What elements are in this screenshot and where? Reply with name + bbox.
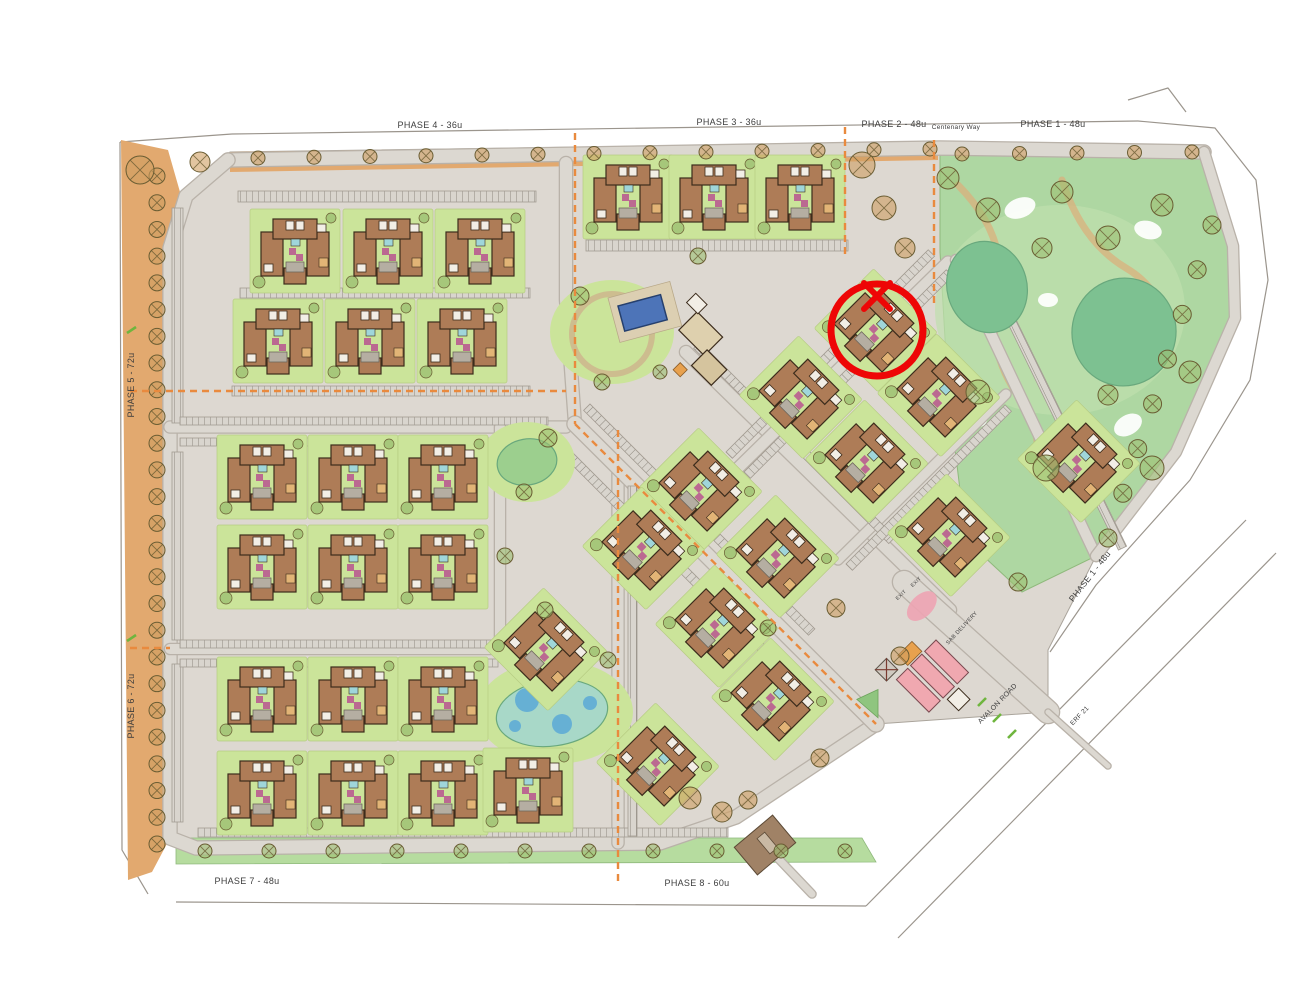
patio-detail [286, 706, 295, 715]
building-block [398, 525, 488, 609]
building-wing [366, 219, 410, 239]
planting-detail [801, 200, 808, 207]
planting-detail [354, 702, 361, 709]
patio-detail [652, 204, 661, 213]
patio-detail [412, 258, 421, 267]
building-block [250, 209, 340, 293]
building-wing [421, 761, 465, 781]
garden-tree-icon [420, 366, 432, 378]
court-detail [361, 352, 379, 362]
building-block [217, 435, 307, 519]
roof-unit [354, 763, 362, 772]
roof-unit [284, 450, 293, 458]
garden-tree-icon [328, 366, 340, 378]
garden-tree-icon [401, 502, 413, 514]
court-detail [286, 262, 304, 272]
tree-icon [976, 198, 1000, 222]
planting-detail [444, 796, 451, 803]
court-detail [791, 208, 809, 218]
tree-icon [190, 152, 210, 172]
parking-bays [586, 240, 848, 251]
tree-icon [811, 144, 825, 158]
garden-tree-icon [384, 755, 394, 765]
garden-tree-icon [831, 159, 841, 169]
water-feature [458, 329, 467, 336]
roof-unit [444, 537, 452, 546]
tree-icon [1070, 146, 1084, 160]
tree-icon [149, 542, 165, 558]
tree-icon [149, 702, 165, 718]
survey-tick [1008, 730, 1016, 738]
building-wing [240, 761, 284, 781]
water-feature [624, 185, 633, 192]
roof-unit [449, 264, 458, 272]
garden-tree-icon [326, 213, 336, 223]
tree-icon [1033, 455, 1059, 481]
parking-bays [172, 664, 183, 822]
patio-detail [377, 800, 386, 809]
building-block [233, 299, 323, 383]
court-detail [619, 208, 637, 218]
building-wing [331, 535, 375, 555]
tree-icon [1144, 395, 1162, 413]
roof-unit [444, 447, 452, 456]
planting-detail [437, 474, 444, 481]
roof-unit [379, 221, 387, 230]
planting-detail [347, 474, 354, 481]
patio-detail [302, 348, 311, 357]
tree-icon [149, 649, 165, 665]
planting-detail [256, 474, 263, 481]
water-feature [796, 185, 805, 192]
building-wing [256, 309, 300, 329]
tree-icon [149, 248, 165, 264]
garden-tree-icon [672, 222, 684, 234]
tree-icon [690, 248, 706, 264]
tree-icon [1158, 350, 1176, 368]
roof-unit [529, 760, 537, 769]
planting-detail [354, 480, 361, 487]
garden-tree-icon [220, 502, 232, 514]
planting-detail [263, 702, 270, 709]
court-detail [519, 801, 537, 811]
court-detail [344, 578, 362, 588]
planting-detail [437, 696, 444, 703]
building-block [398, 435, 488, 519]
garden-tree-icon [293, 529, 303, 539]
planting-detail [263, 480, 270, 487]
garden-tree-icon [586, 222, 598, 234]
planting-detail [279, 344, 286, 351]
boundary-road-line [232, 121, 1138, 134]
tree-icon [891, 647, 909, 665]
planting-detail [444, 480, 451, 487]
building-wing [273, 219, 317, 239]
tree-icon [1129, 440, 1147, 458]
water-feature [439, 687, 448, 694]
building-wing [506, 758, 550, 778]
building-wing [692, 165, 736, 185]
tree-icon [895, 238, 915, 258]
tree-icon [1051, 181, 1073, 203]
roof-unit [263, 447, 271, 456]
tree-icon [149, 328, 165, 344]
pond-water [552, 714, 572, 734]
tree-icon [582, 844, 596, 858]
planting-detail [456, 338, 463, 345]
building-block [343, 209, 433, 293]
roof-unit [354, 669, 362, 678]
tree-icon [454, 844, 468, 858]
roof-unit [410, 224, 419, 232]
tree-icon [1179, 361, 1201, 383]
planting-detail [522, 787, 529, 794]
garden-tree-icon [220, 724, 232, 736]
court-detail [434, 710, 452, 720]
planting-detail [347, 790, 354, 797]
water-feature [524, 778, 533, 785]
roof-unit [322, 712, 331, 720]
building-wing [240, 535, 284, 555]
planting-detail [347, 696, 354, 703]
roof-unit [484, 314, 493, 322]
roof-unit [465, 672, 474, 680]
garden-tree-icon [493, 303, 503, 313]
garden-tree-icon [486, 815, 498, 827]
tree-icon [739, 791, 757, 809]
tree-icon [1114, 484, 1132, 502]
water-feature [439, 555, 448, 562]
patio-detail [319, 258, 328, 267]
phase-label: PHASE 3 - 36u [697, 117, 762, 127]
tree-icon [326, 844, 340, 858]
water-feature [439, 781, 448, 788]
roof-unit [300, 314, 309, 322]
roof-unit [231, 580, 240, 588]
tree-icon [1128, 146, 1142, 160]
garden-tree-icon [401, 818, 413, 830]
garden-tree-icon [474, 755, 484, 765]
tree-icon [149, 596, 165, 612]
roof-unit [375, 450, 384, 458]
roof-unit [736, 170, 745, 178]
roof-unit [650, 170, 659, 178]
tree-icon [872, 196, 896, 220]
garden-tree-icon [401, 592, 413, 604]
roof-unit [502, 224, 511, 232]
patio-detail [467, 800, 476, 809]
patio-detail [394, 348, 403, 357]
planting-detail [708, 194, 715, 201]
building-wing [778, 165, 822, 185]
tree-icon [539, 429, 557, 447]
planting-detail [382, 248, 389, 255]
tree-icon [1009, 573, 1027, 591]
roof-unit [434, 537, 442, 546]
garden-tree-icon [659, 159, 669, 169]
patio-detail [552, 797, 561, 806]
patio-detail [377, 484, 386, 493]
garden-tree-icon [309, 303, 319, 313]
planting-detail [463, 344, 470, 351]
boundary-road-line [120, 134, 232, 142]
tree-icon [198, 844, 212, 858]
tree-icon [653, 365, 667, 379]
building-wing [421, 667, 465, 687]
planting-detail [622, 194, 629, 201]
building-block [308, 657, 398, 741]
tree-icon [827, 599, 845, 617]
building-wing [240, 667, 284, 687]
roof-unit [412, 806, 421, 814]
roof-unit [519, 760, 527, 769]
garden-tree-icon [293, 439, 303, 449]
tree-icon [307, 150, 321, 164]
building-wing [421, 535, 465, 555]
tree-icon [149, 809, 165, 825]
planting-detail [263, 796, 270, 803]
parking-bays [238, 191, 536, 202]
patio-detail [377, 574, 386, 583]
building-block [435, 209, 525, 293]
phase-label: PHASE 7 - 48u [215, 876, 280, 886]
garden-tree-icon [511, 213, 521, 223]
roof-unit [822, 170, 831, 178]
building-block [417, 299, 507, 383]
planting-detail [437, 790, 444, 797]
roof-unit [286, 221, 294, 230]
planting-detail [371, 344, 378, 351]
roof-unit [434, 447, 442, 456]
tree-icon [774, 844, 788, 858]
water-feature [710, 185, 719, 192]
phase-label: PHASE 8 - 60u [665, 878, 730, 888]
garden-tree-icon [474, 661, 484, 671]
tree-icon [516, 484, 532, 500]
court-detail [253, 578, 271, 588]
roof-unit [465, 540, 474, 548]
roof-unit [253, 447, 261, 456]
tree-icon [643, 146, 657, 160]
roof-unit [444, 669, 452, 678]
roof-unit [322, 490, 331, 498]
roof-unit [497, 803, 506, 811]
road-label: Centenary Way [932, 124, 981, 131]
roof-unit [344, 763, 352, 772]
building-wing [606, 165, 650, 185]
road-label: ERF 21 [1069, 705, 1091, 727]
tree-icon [518, 844, 532, 858]
water-feature [384, 239, 393, 246]
building-block [217, 657, 307, 741]
tree-icon [1151, 194, 1173, 216]
tree-icon [1203, 216, 1221, 234]
pond-water [583, 696, 597, 710]
planting-detail [296, 254, 303, 261]
tree-icon [849, 152, 875, 178]
court-detail [434, 488, 452, 498]
planting-detail [437, 564, 444, 571]
tree-icon [149, 302, 165, 318]
tree-icon [149, 275, 165, 291]
garden-tree-icon [220, 818, 232, 830]
building-block [217, 525, 307, 609]
phase-label: PHASE 5 - 72u [126, 353, 136, 418]
roof-unit [619, 167, 627, 176]
tree-icon [594, 374, 610, 390]
court-detail [434, 804, 452, 814]
water-feature [291, 239, 300, 246]
building-block [398, 657, 488, 741]
patio-detail [824, 204, 833, 213]
roof-unit [481, 221, 489, 230]
water-feature [258, 465, 267, 472]
court-detail [705, 208, 723, 218]
tree-icon [811, 749, 829, 767]
building-block [583, 155, 673, 239]
tree-icon [149, 515, 165, 531]
tree-icon [646, 844, 660, 858]
planting-detail [629, 200, 636, 207]
roof-unit [344, 669, 352, 678]
roof-unit [412, 490, 421, 498]
court-detail [253, 488, 271, 498]
roof-unit [344, 537, 352, 546]
tree-icon [587, 147, 601, 161]
court-detail [453, 352, 471, 362]
garden-tree-icon [253, 276, 265, 288]
building-block [308, 751, 398, 835]
roof-unit [253, 669, 261, 678]
water-feature [258, 781, 267, 788]
building-block [483, 748, 573, 832]
roof-unit [354, 447, 362, 456]
roof-unit [791, 167, 799, 176]
tree-icon [149, 221, 165, 237]
roof-unit [715, 167, 723, 176]
planting-detail [474, 248, 481, 255]
water-feature [349, 555, 358, 562]
water-feature [258, 687, 267, 694]
building-wing [240, 445, 284, 465]
tree-icon [1140, 456, 1164, 480]
roof-unit [453, 311, 461, 320]
tree-icon [262, 844, 276, 858]
water-feature [476, 239, 485, 246]
tree-icon [755, 144, 769, 158]
tree-icon [571, 287, 589, 305]
water-feature [258, 555, 267, 562]
planting-detail [272, 338, 279, 345]
patio-detail [286, 484, 295, 493]
roof-unit [339, 354, 348, 362]
roof-unit [231, 712, 240, 720]
tree-icon [1032, 238, 1052, 258]
roof-unit [769, 210, 778, 218]
roof-unit [801, 167, 809, 176]
garden-tree-icon [438, 276, 450, 288]
court-detail [379, 262, 397, 272]
patio-detail [286, 800, 295, 809]
park-play-area [1038, 293, 1058, 307]
roof-unit [434, 763, 442, 772]
tree-icon [838, 844, 852, 858]
water-feature [274, 329, 283, 336]
building-block [755, 155, 845, 239]
tree-icon [149, 462, 165, 478]
planting-detail [444, 702, 451, 709]
tree-icon [1185, 145, 1199, 159]
court-detail [344, 804, 362, 814]
garden-tree-icon [401, 724, 413, 736]
tree-icon [710, 844, 724, 858]
tree-icon [149, 435, 165, 451]
site-plan-map: PHASE 4 - 36uPHASE 3 - 36uPHASE 2 - 48uP… [0, 0, 1298, 1003]
court-detail [253, 710, 271, 720]
roof-unit [412, 580, 421, 588]
building-block [308, 525, 398, 609]
garden-tree-icon [384, 439, 394, 449]
tree-icon [1013, 147, 1027, 161]
tree-icon [149, 622, 165, 638]
building-wing [331, 445, 375, 465]
garden-tree-icon [311, 818, 323, 830]
court-detail [344, 488, 362, 498]
garden-tree-icon [293, 661, 303, 671]
boundary-road-line [176, 902, 866, 906]
parking-bays [180, 640, 498, 648]
roof-unit [392, 314, 401, 322]
roof-unit [322, 580, 331, 588]
patio-detail [504, 258, 513, 267]
tree-icon [1099, 529, 1117, 547]
water-feature [349, 465, 358, 472]
phase-label: PHASE 2 - 48u [862, 119, 927, 129]
roof-unit [412, 712, 421, 720]
court-detail [269, 352, 287, 362]
roof-unit [431, 354, 440, 362]
garden-tree-icon [401, 303, 411, 313]
tree-icon [363, 150, 377, 164]
planting-detail [354, 570, 361, 577]
tree-icon [600, 652, 616, 668]
court-detail [344, 710, 362, 720]
roof-unit [284, 766, 293, 774]
building-block [325, 299, 415, 383]
planting-detail [354, 796, 361, 803]
tree-icon [699, 145, 713, 159]
tree-icon [149, 836, 165, 852]
court-detail [471, 262, 489, 272]
roof-unit [354, 537, 362, 546]
building-wing [421, 445, 465, 465]
roof-unit [263, 669, 271, 678]
patio-detail [467, 574, 476, 583]
patio-detail [486, 348, 495, 357]
parking-bays [180, 417, 548, 425]
patio-detail [286, 574, 295, 583]
roof-unit [344, 447, 352, 456]
roof-unit [629, 167, 637, 176]
water-feature [366, 329, 375, 336]
garden-tree-icon [311, 724, 323, 736]
roof-unit [705, 167, 713, 176]
patio-detail [377, 706, 386, 715]
garden-tree-icon [236, 366, 248, 378]
roof-unit [471, 221, 479, 230]
tree-icon [966, 380, 990, 404]
planting-detail [481, 254, 488, 261]
